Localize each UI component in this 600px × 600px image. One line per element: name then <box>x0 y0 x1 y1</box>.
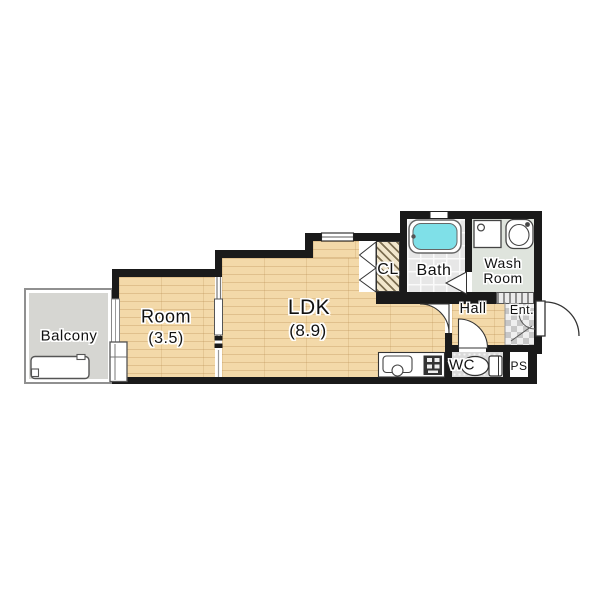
balcony-label: Balcony <box>41 328 98 345</box>
floor-plan: Balcony Room (3.5) LDK (8.9) CL Bath Was… <box>0 0 600 600</box>
ldk-floor-upper <box>313 241 359 258</box>
wall <box>465 211 472 272</box>
entrance-door <box>536 301 579 336</box>
wall <box>445 345 459 352</box>
hall-label: Hall <box>460 301 487 317</box>
wash-room-label-line1: Wash <box>483 256 522 271</box>
wall <box>112 377 537 384</box>
bath-label: Bath <box>417 262 452 280</box>
bath-floor <box>407 219 465 292</box>
ldk-label: LDK <box>288 296 330 320</box>
wash-room-label: Wash Room <box>483 256 522 286</box>
closet-label: CL <box>377 261 398 279</box>
room-label: Room <box>141 307 191 328</box>
wall <box>305 233 404 241</box>
ldk-size-label: (8.9) <box>289 321 326 341</box>
room-size-label: (3.5) <box>148 330 183 348</box>
wc-label: WC <box>449 357 475 374</box>
wall <box>112 269 222 277</box>
wall <box>215 250 222 277</box>
ps-label: PS <box>510 359 527 373</box>
wall <box>503 345 510 384</box>
wall <box>534 211 542 304</box>
wall <box>528 345 537 384</box>
entrance-label: Ent. <box>510 303 534 317</box>
wall <box>215 250 312 258</box>
wall <box>400 211 407 304</box>
wall <box>112 269 119 300</box>
wash-room-label-line2: Room <box>483 271 522 286</box>
